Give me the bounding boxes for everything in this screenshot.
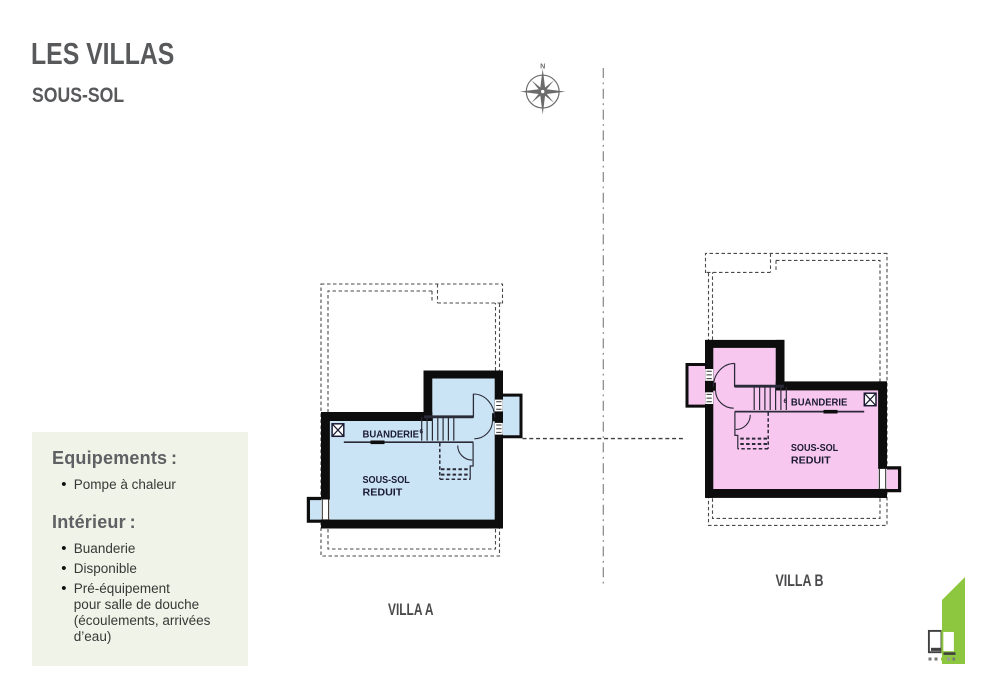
svg-text:REDUIT: REDUIT (363, 487, 403, 498)
svg-text:6: 6 (420, 429, 424, 436)
svg-text:BUANDERIE: BUANDERIE (363, 429, 420, 440)
svg-text:VILLA A: VILLA A (388, 600, 434, 619)
svg-text:6: 6 (784, 398, 788, 405)
svg-text:BUANDERIE: BUANDERIE (791, 398, 848, 409)
svg-text:VILLA B: VILLA B (776, 571, 824, 590)
svg-text:SOUS-SOL: SOUS-SOL (791, 443, 838, 454)
svg-text:N: N (540, 62, 545, 71)
svg-text:SOUS-SOL: SOUS-SOL (363, 475, 410, 486)
svg-text:REDUIT: REDUIT (791, 455, 831, 466)
